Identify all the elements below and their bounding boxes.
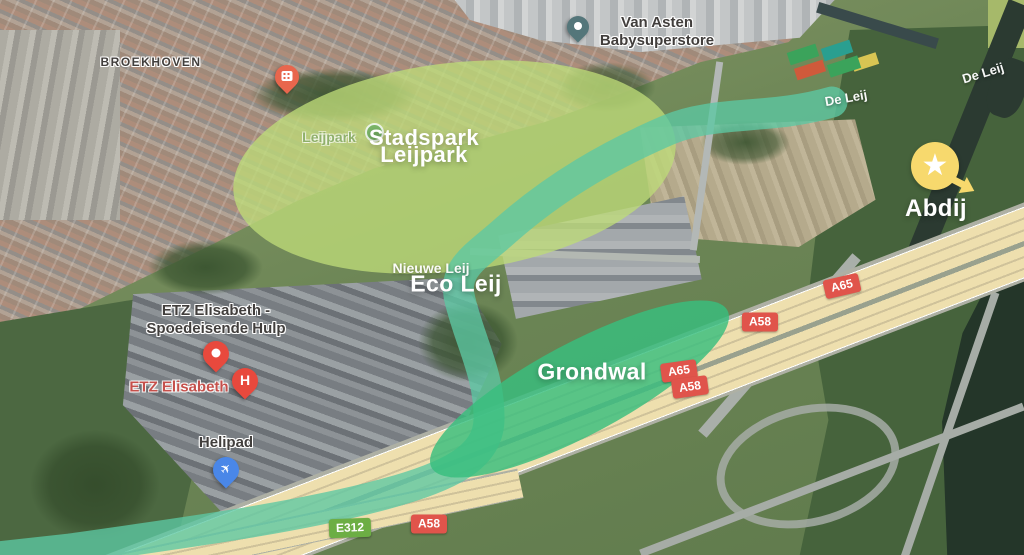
eco-leij-overlay xyxy=(0,0,1024,555)
grondwal-overlay-label: Grondwal xyxy=(537,359,646,386)
stadspark-label-line2: Leijpark xyxy=(369,146,479,163)
park-small-label: Leijpark xyxy=(302,129,356,145)
hospital-h-icon: H xyxy=(240,372,250,388)
dot-icon xyxy=(574,22,582,30)
store-label-line2: Babysuperstore xyxy=(600,32,714,50)
road-badge-a58: A58 xyxy=(742,313,778,332)
abdij-overlay-label: Abdij xyxy=(905,195,967,223)
store-label: Van Asten Babysuperstore xyxy=(600,14,714,50)
store-label-line1: Van Asten xyxy=(600,14,714,32)
eco-leij-overlay-label: Eco Leij xyxy=(410,271,501,298)
stadspark-overlay-label: Stadspark Leijpark xyxy=(369,129,479,163)
building-icon xyxy=(282,71,293,81)
map-canvas[interactable]: A65 A58 A65 A58 E312 A58 H ✈ ★ BROEKHOV xyxy=(0,0,1024,555)
road-badge-e312: E312 xyxy=(329,518,372,538)
helipad-label: Helipad xyxy=(199,434,253,452)
neighborhood-label: BROEKHOVEN xyxy=(100,55,201,69)
etz-emergency-line2: Spoedeisende Hulp xyxy=(146,320,285,338)
etz-emergency-label: ETZ Elisabeth - Spoedeisende Hulp xyxy=(146,302,285,338)
dot-icon xyxy=(212,349,221,358)
etz-hospital-label: ETZ Elisabeth xyxy=(129,379,228,396)
road-badge-a58: A58 xyxy=(411,515,447,534)
etz-emergency-line1: ETZ Elisabeth - xyxy=(146,302,285,320)
